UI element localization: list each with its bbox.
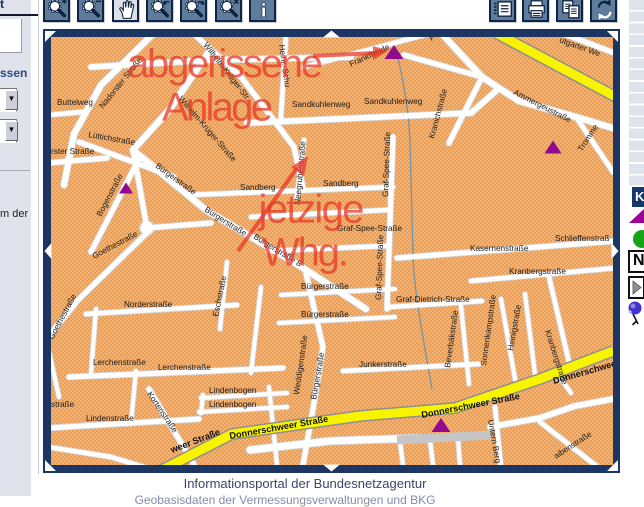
svg-text:i: i [261,1,266,20]
